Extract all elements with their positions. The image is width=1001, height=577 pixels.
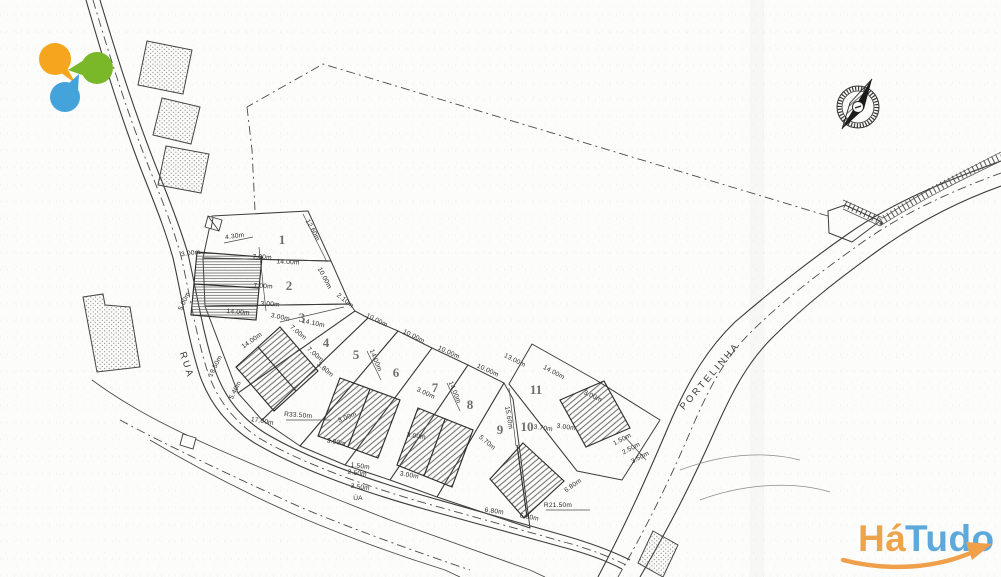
dimension-label: R33.50m	[284, 411, 313, 420]
dimension-label: 10.00m	[402, 328, 426, 345]
watermark-ha: Há	[858, 518, 906, 559]
lot-number: 11	[530, 382, 542, 397]
dimension-label: 10.00m	[316, 266, 333, 290]
dimension-label: 3.00m	[556, 423, 576, 433]
dimension-label: 3.50m	[630, 450, 651, 465]
lot-number: 9	[497, 422, 504, 437]
existing-buildings	[83, 41, 678, 577]
brand-bubbles-logo	[39, 43, 113, 112]
dimension-label: R21.50m	[544, 502, 572, 509]
lot-number: 7	[432, 380, 439, 395]
retaining-wall-ticks	[828, 152, 1001, 242]
dimension-label: 5.40m	[228, 380, 243, 401]
dimension-label: 14.00m	[542, 364, 566, 381]
dimension-label: 10.00m	[365, 312, 389, 329]
road-portelinha	[598, 161, 1001, 577]
site-boundary-dashdot	[247, 64, 828, 216]
dimension-label: 14.00m	[368, 348, 383, 372]
lot-number: 10	[521, 419, 534, 434]
existing-building-left	[83, 294, 140, 372]
dimension-label: 7.00m	[252, 254, 272, 262]
dimension-label: 2.10m	[335, 292, 355, 310]
dimension-label: 3.50m	[350, 483, 370, 493]
lower-boundary-arcs	[92, 380, 545, 577]
lot-number: 2	[286, 278, 293, 293]
scanned-site-plan: 4.30m12.60m3.00m7.00m14.00m10.00m7.00m3.…	[0, 0, 1001, 577]
dimension-label: 15.60m	[503, 406, 514, 430]
lot-number: 5	[353, 347, 360, 362]
dimension-label: ÚA	[353, 493, 363, 502]
dimension-label: 13.00m	[503, 352, 527, 369]
dimension-label: 4.30m	[225, 232, 245, 242]
lot-number: 1	[279, 232, 286, 247]
bubble-green	[81, 52, 113, 84]
hatudo-watermark: Há Tudo	[843, 518, 995, 567]
lot-number: 3	[299, 310, 306, 325]
dimension-label: 3.00m	[270, 312, 291, 323]
site-plan-drawing: 4.30m12.60m3.00m7.00m14.00m10.00m7.00m3.…	[0, 0, 1001, 577]
dimension-label: 2.50m	[347, 469, 367, 479]
dimension-label: 3.70m	[533, 424, 553, 434]
lot-number: 4	[323, 335, 330, 350]
north-arrow	[837, 79, 879, 129]
dimension-label: 10.00m	[437, 345, 461, 361]
dimension-label: 7.00m	[253, 283, 273, 291]
dimension-label: 19.50m	[207, 354, 224, 378]
dimension-label: 6.80m	[563, 477, 583, 494]
dimension-label: 12.60m	[304, 218, 321, 242]
road-name-label: RUA	[177, 350, 196, 380]
dimension-label: 3.00m	[260, 301, 280, 309]
dimension-label: 6.80m	[484, 507, 504, 517]
dimension-label: 5.70m	[477, 434, 497, 452]
lot-number: 6	[393, 365, 400, 380]
dimension-label: 14.00m	[276, 258, 300, 266]
dimension-label: 5.00m	[177, 291, 192, 312]
watermark-tudo: Tudo	[905, 518, 995, 559]
scan-artifact-band	[750, 0, 764, 577]
lot-number: 8	[467, 397, 474, 412]
roadside-structure	[828, 205, 880, 242]
dimension-label: 3.80m	[315, 361, 335, 379]
